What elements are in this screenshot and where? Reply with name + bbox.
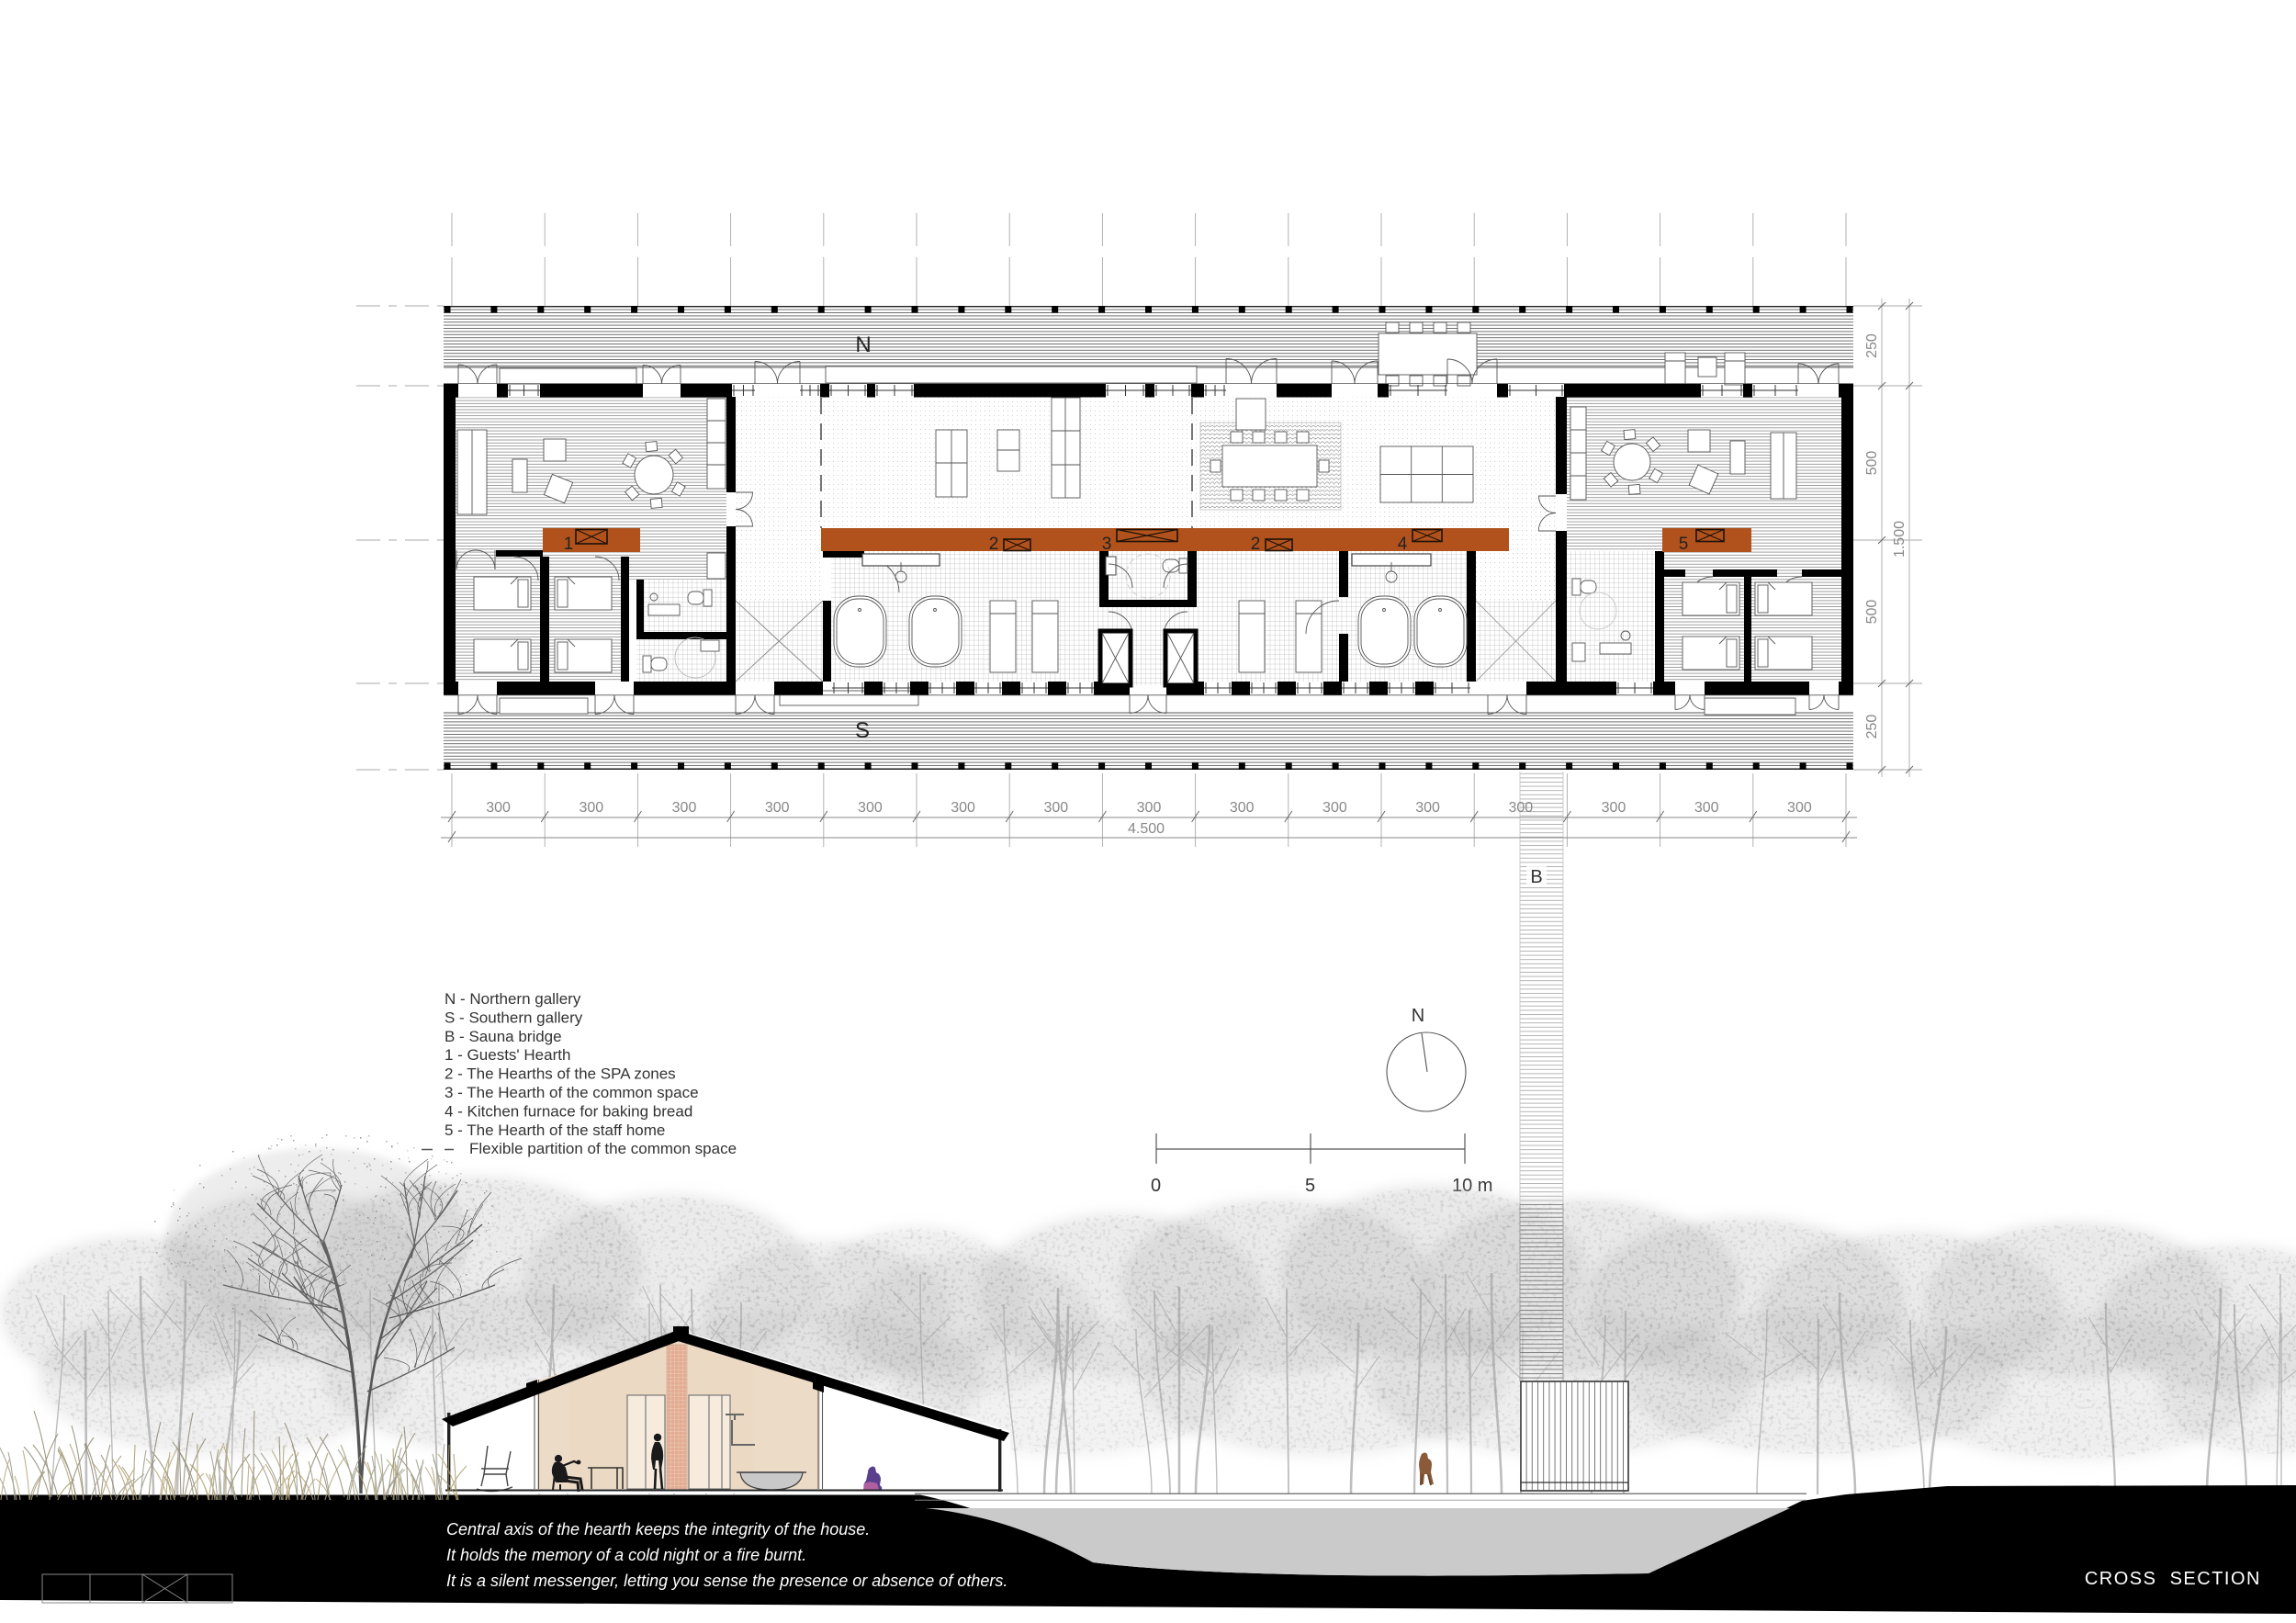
svg-text:4: 4: [1398, 535, 1408, 554]
svg-text:300: 300: [672, 800, 697, 816]
svg-text:300: 300: [1322, 800, 1347, 816]
svg-text:It is a silent messenger, lett: It is a silent messenger, letting you se…: [446, 1572, 1007, 1590]
svg-text:S: S: [855, 718, 870, 743]
svg-text:CROSS SECTION: CROSS SECTION: [2085, 1569, 2261, 1589]
svg-text:300: 300: [1694, 800, 1719, 816]
svg-text:300: 300: [951, 800, 975, 816]
svg-text:N - Northern gallery: N - Northern gallery: [445, 990, 581, 1008]
svg-text:300: 300: [486, 800, 511, 816]
svg-text:3: 3: [1102, 535, 1112, 554]
svg-text:300: 300: [858, 800, 883, 816]
svg-text:4.500: 4.500: [1128, 821, 1165, 837]
svg-text:1: 1: [564, 535, 574, 554]
svg-text:300: 300: [1602, 800, 1626, 816]
svg-text:300: 300: [765, 800, 790, 816]
svg-text:4 - Kitchen furnace for baking: 4 - Kitchen furnace for baking bread: [445, 1102, 692, 1120]
svg-text:0: 0: [1151, 1176, 1161, 1196]
svg-text:2 - The Hearths of the SPA zon: 2 - The Hearths of the SPA zones: [445, 1065, 676, 1083]
svg-text:2: 2: [1251, 535, 1261, 554]
svg-text:1 - Guests' Hearth: 1 - Guests' Hearth: [445, 1046, 570, 1064]
svg-text:250: 250: [1864, 715, 1880, 739]
svg-text:5: 5: [1305, 1176, 1315, 1196]
svg-text:B - Sauna bridge: B - Sauna bridge: [445, 1028, 562, 1045]
svg-text:B: B: [1530, 867, 1542, 887]
svg-text:250: 250: [1864, 333, 1880, 358]
svg-text:S - Southern gallery: S - Southern gallery: [445, 1009, 583, 1026]
svg-text:300: 300: [1415, 800, 1440, 816]
svg-text:300: 300: [1230, 800, 1255, 816]
svg-text:Central axis of the hearth kee: Central axis of the hearth keeps the int…: [446, 1520, 870, 1538]
svg-text:3 - The Hearth of the common s: 3 - The Hearth of the common space: [445, 1084, 699, 1101]
svg-text:N: N: [1412, 1006, 1424, 1026]
svg-text:It holds the memory of a cold: It holds the memory of a cold night or a…: [446, 1546, 806, 1564]
svg-text:300: 300: [1043, 800, 1068, 816]
svg-text:2: 2: [989, 535, 999, 554]
svg-text:300: 300: [579, 800, 603, 816]
svg-text:5 - The Hearth of the staff ho: 5 - The Hearth of the staff home: [445, 1121, 665, 1139]
svg-text:300: 300: [1787, 800, 1812, 816]
svg-text:500: 500: [1864, 451, 1880, 476]
svg-text:Flexible partition of the comm: Flexible partition of the common space: [469, 1140, 737, 1157]
svg-text:N: N: [855, 332, 871, 357]
svg-text:5: 5: [1679, 535, 1689, 554]
svg-text:1.500: 1.500: [1892, 521, 1908, 558]
svg-text:300: 300: [1508, 800, 1533, 816]
svg-text:300: 300: [1137, 800, 1162, 816]
svg-text:500: 500: [1864, 600, 1880, 625]
